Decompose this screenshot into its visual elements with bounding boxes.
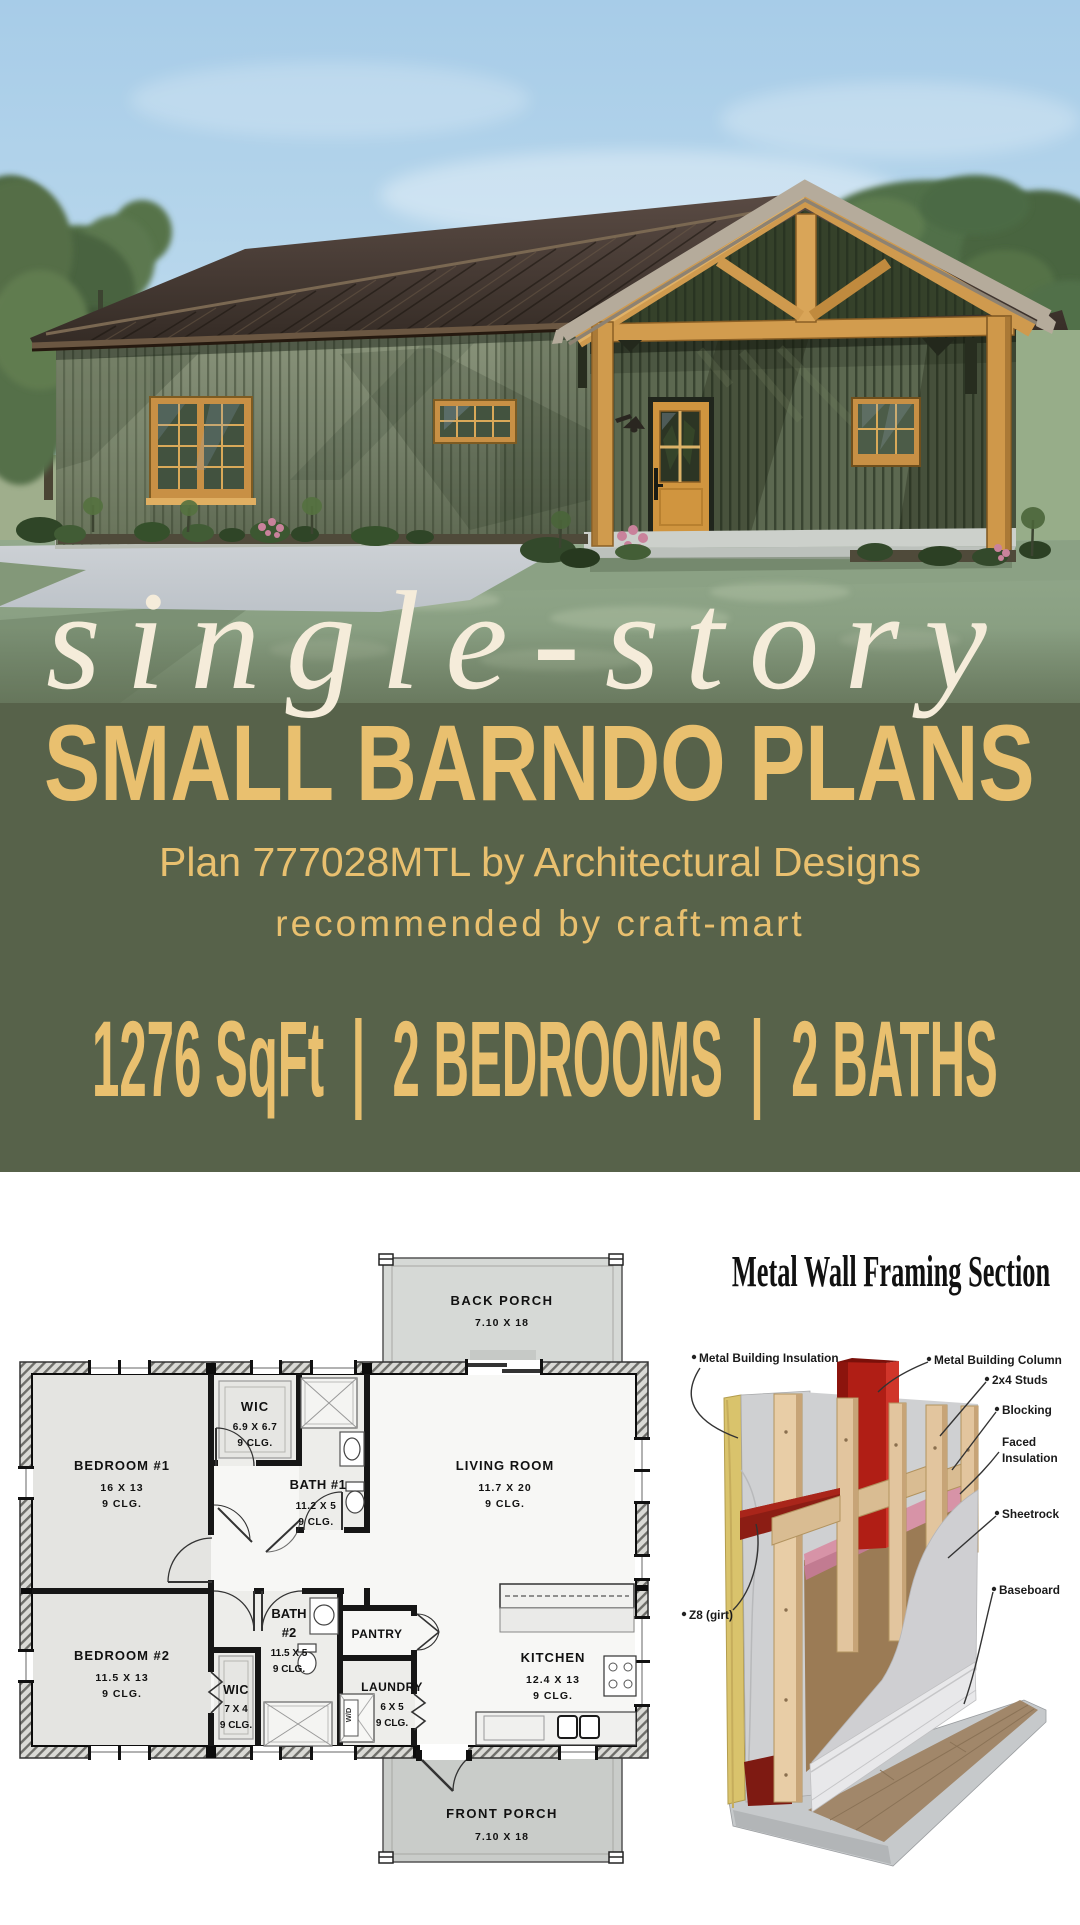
svg-text:9 CLG.: 9 CLG. (102, 1688, 142, 1700)
svg-text:KITCHEN: KITCHEN (521, 1650, 586, 1665)
svg-text:BATH #1: BATH #1 (290, 1477, 347, 1492)
svg-text:7 X 4: 7 X 4 (224, 1704, 248, 1715)
svg-text:Sheetrock: Sheetrock (1002, 1507, 1059, 1521)
svg-text:BATH: BATH (271, 1606, 306, 1621)
svg-text:PANTRY: PANTRY (352, 1627, 403, 1641)
svg-text:9 CLG.: 9 CLG. (237, 1438, 272, 1449)
svg-text:#2: #2 (282, 1625, 296, 1640)
svg-text:6.9 X 6.7: 6.9 X 6.7 (233, 1422, 278, 1433)
svg-text:Faced: Faced (1002, 1435, 1036, 1449)
svg-text:LAUNDRY: LAUNDRY (361, 1680, 423, 1694)
svg-text:9 CLG.: 9 CLG. (298, 1517, 333, 1528)
svg-text:11.2 X 5: 11.2 X 5 (296, 1501, 337, 1512)
svg-text:Blocking: Blocking (1002, 1403, 1052, 1417)
svg-text:9 CLG.: 9 CLG. (220, 1720, 252, 1731)
svg-text:12.4 X 13: 12.4 X 13 (526, 1674, 580, 1686)
svg-text:Metal Wall Framing Section: Metal Wall Framing Section (732, 1247, 1050, 1296)
svg-text:Baseboard: Baseboard (999, 1583, 1060, 1597)
svg-text:Metal Building Insulation: Metal Building Insulation (699, 1351, 839, 1365)
svg-text:LIVING ROOM: LIVING ROOM (456, 1458, 554, 1473)
svg-text:BEDROOM #1: BEDROOM #1 (74, 1458, 170, 1473)
svg-text:9 CLG.: 9 CLG. (376, 1718, 408, 1729)
svg-text:2x4 Studs: 2x4 Studs (992, 1373, 1048, 1387)
svg-text:9 CLG.: 9 CLG. (102, 1498, 142, 1510)
svg-text:11.5 X 13: 11.5 X 13 (95, 1672, 148, 1684)
svg-text:FRONT PORCH: FRONT PORCH (446, 1806, 558, 1821)
svg-text:6 X 5: 6 X 5 (380, 1702, 404, 1713)
svg-text:Z8 (girt): Z8 (girt) (689, 1608, 733, 1622)
svg-text:WIC: WIC (223, 1683, 249, 1697)
svg-text:7.10 X 18: 7.10 X 18 (475, 1831, 529, 1843)
svg-text:W/D: W/D (344, 1707, 353, 1722)
svg-text:11.7 X 20: 11.7 X 20 (478, 1482, 531, 1494)
svg-text:BEDROOM #2: BEDROOM #2 (74, 1648, 170, 1663)
svg-text:Metal Building Column: Metal Building Column (934, 1353, 1062, 1367)
svg-text:WIC: WIC (241, 1399, 269, 1414)
svg-text:9 CLG.: 9 CLG. (533, 1690, 573, 1702)
svg-text:16 X 13: 16 X 13 (100, 1482, 143, 1494)
svg-text:BACK PORCH: BACK PORCH (450, 1293, 553, 1308)
svg-text:7.10 X 18: 7.10 X 18 (475, 1317, 529, 1329)
svg-text:Insulation: Insulation (1002, 1451, 1058, 1465)
svg-text:11.5 X 5: 11.5 X 5 (271, 1648, 308, 1659)
svg-text:9 CLG.: 9 CLG. (273, 1664, 305, 1675)
svg-text:9 CLG.: 9 CLG. (485, 1498, 525, 1510)
